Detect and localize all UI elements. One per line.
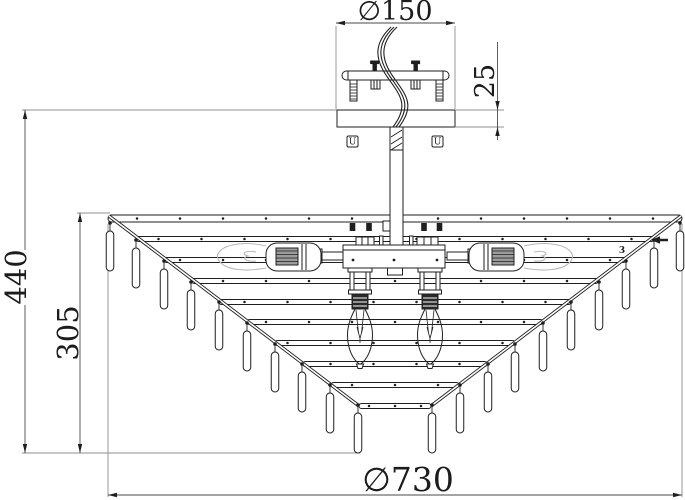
rivet-dot (351, 321, 354, 324)
crystal-pendant (456, 393, 464, 433)
rivet-dot (157, 238, 160, 241)
crystal-pendant (326, 393, 334, 433)
rivet-dot (501, 342, 504, 345)
rivet-dot (480, 217, 483, 220)
rivet-dot (351, 217, 354, 220)
crystal-pendant (215, 310, 223, 350)
rivet-dot (308, 217, 311, 220)
technical-drawing: U U (0, 0, 685, 500)
dim-frame-diameter: ∅730 (362, 460, 454, 499)
rivet-dot (523, 321, 526, 324)
rivet-dot (329, 342, 332, 345)
rivet-dot (372, 342, 375, 345)
rivet-dot (480, 321, 483, 324)
hub-terminal (417, 237, 438, 245)
crystal-pendant (650, 248, 658, 288)
dim-canopy-diameter: ∅150 (357, 0, 432, 27)
rivet-dot (394, 384, 397, 387)
rivet-dot (179, 259, 182, 262)
screw-mark-label-left: U (349, 138, 357, 148)
rivet-dot (372, 363, 375, 366)
filament (356, 310, 364, 343)
crystal-pendant (595, 290, 603, 330)
rivet-dot (458, 301, 461, 304)
frame-tier (219, 300, 571, 305)
chandelier-dimension-drawing: U U (0, 0, 685, 500)
crystal-pendant (243, 331, 251, 371)
rivet-dot (394, 405, 397, 408)
crystal-pendant (511, 352, 519, 392)
bracket-bolt (371, 61, 420, 71)
crystal-pendant (160, 269, 168, 309)
dim-canopy-height: 25 (470, 64, 501, 98)
rivet-dot (501, 238, 504, 241)
screw-mark-label-right: U (434, 138, 442, 148)
canopy-plate (337, 110, 455, 127)
crystal-pendant (539, 331, 547, 371)
rivet-dot (544, 301, 547, 304)
frame-tier (275, 341, 515, 346)
rivet-dot (222, 280, 225, 283)
rivet-dot (308, 280, 311, 283)
rivet-dot (394, 280, 397, 283)
crystal-pendant (271, 352, 279, 392)
rivet-dot (415, 363, 418, 366)
rivet-dot (437, 217, 440, 220)
crystal-pendant (354, 413, 362, 453)
rivet-dot (368, 405, 371, 408)
crystal-pendant (106, 231, 114, 271)
rivet-dot (394, 321, 397, 324)
rivet-dot (308, 321, 311, 324)
rivet-dot (420, 405, 423, 408)
rivet-dot (243, 301, 246, 304)
e14-socket (276, 248, 298, 265)
crystal-pendant (567, 310, 575, 350)
rivet-dot (630, 238, 633, 241)
crystal-pendant (187, 290, 195, 330)
rivet-dot (566, 217, 569, 220)
rivet-dot (523, 280, 526, 283)
bulb-arm (320, 252, 343, 260)
rivet-dot (351, 384, 354, 387)
rivet-dot (415, 342, 418, 345)
rivet-dot (523, 217, 526, 220)
candle-bulb-glass (348, 309, 373, 369)
dim-frame-height: 305 (51, 305, 85, 360)
rivet-dot (458, 342, 461, 345)
rivet-dot (222, 259, 225, 262)
crystal-pendant (484, 372, 492, 412)
ghost-bulb (218, 244, 267, 270)
rivet-dot (652, 217, 655, 220)
rivet-dot (136, 217, 139, 220)
rivet-dot (458, 238, 461, 241)
rivet-dot (286, 342, 289, 345)
rivet-dot (200, 238, 203, 241)
rivet-dot (243, 238, 246, 241)
dim-total-height: 440 (0, 249, 33, 304)
rivet-dot (329, 301, 332, 304)
rivet-dot (372, 301, 375, 304)
e14-socket (352, 294, 368, 309)
hub-body (343, 245, 445, 268)
rivet-dot (415, 301, 418, 304)
rivet-dot (286, 238, 289, 241)
crystal-pendant (132, 248, 140, 288)
rivet-dot (329, 363, 332, 366)
mounting-bracket (342, 71, 449, 80)
crystal-pendant (676, 231, 684, 271)
rivet-dot (265, 280, 268, 283)
rivet-dot (544, 238, 547, 241)
rivet-dot (265, 217, 268, 220)
crystal-pendant (428, 413, 436, 453)
rivet-dot (480, 280, 483, 283)
rivet-dot (179, 217, 182, 220)
rivet-dot (501, 301, 504, 304)
rivet-dot (458, 363, 461, 366)
rivet-dot (609, 217, 612, 220)
rivet-dot (329, 238, 332, 241)
crystal-pendant (622, 269, 630, 309)
stem-clamp (383, 221, 390, 231)
rivet-dot (437, 384, 440, 387)
rivet-dot (222, 217, 225, 220)
rivet-dot (566, 259, 569, 262)
rivet-dot (265, 321, 268, 324)
crystal-pendant (298, 372, 306, 412)
rivet-dot (286, 301, 289, 304)
part-number-label: 3 (619, 246, 625, 256)
rivet-dot (609, 259, 612, 262)
hub-terminal (356, 237, 374, 245)
rivet-dot (437, 321, 440, 324)
hub-hook (388, 268, 403, 275)
rivet-dot (587, 238, 590, 241)
center-stem (383, 127, 403, 245)
rivet-dot (566, 280, 569, 283)
